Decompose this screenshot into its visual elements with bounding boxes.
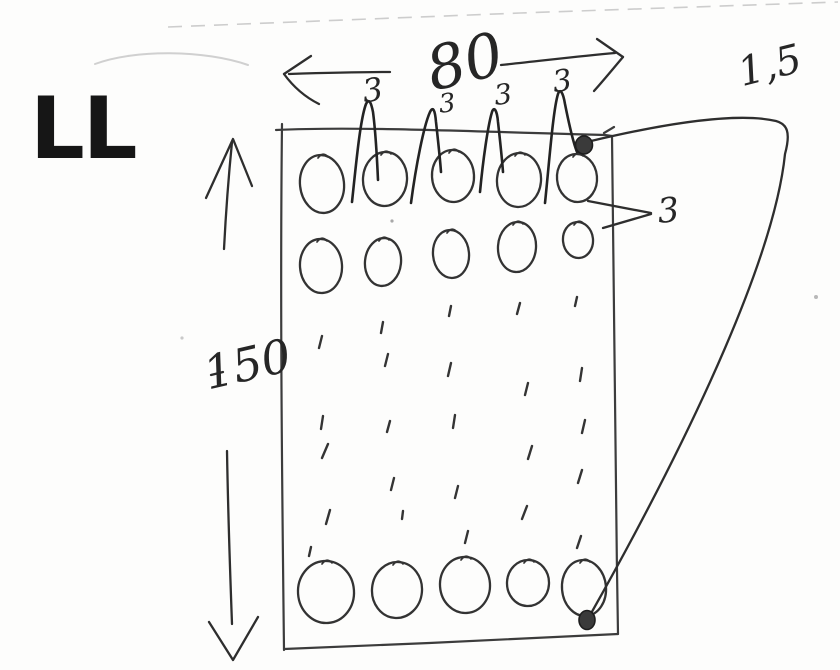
hole-circle bbox=[496, 221, 537, 274]
pencil-arc bbox=[95, 53, 248, 65]
continuation-dash bbox=[321, 416, 323, 429]
hole-circle bbox=[431, 229, 471, 280]
continuation-dash bbox=[453, 415, 455, 428]
anchor-dots bbox=[576, 136, 596, 630]
pitch-spike bbox=[545, 91, 577, 203]
continuation-dash bbox=[326, 510, 330, 524]
hole-circle bbox=[431, 149, 476, 203]
paper-speck bbox=[390, 219, 393, 222]
paper-speck bbox=[814, 295, 818, 299]
continuation-dash bbox=[582, 420, 585, 433]
continuation-dash bbox=[522, 506, 527, 519]
continuation-dash bbox=[387, 421, 390, 432]
hole-circle bbox=[555, 152, 599, 203]
continuation-dash bbox=[381, 322, 383, 333]
continuation-dash bbox=[525, 383, 528, 395]
hole-circle bbox=[361, 151, 409, 208]
plate-top-edge bbox=[276, 129, 612, 136]
continuation-marks bbox=[309, 297, 585, 556]
hole-circle bbox=[561, 221, 595, 260]
pitch-label: 3 bbox=[437, 88, 457, 120]
pitch-label: 3 bbox=[550, 63, 574, 100]
dim-arrow-left-head-icon bbox=[284, 56, 311, 74]
hole-circle bbox=[506, 559, 550, 607]
continuation-dash bbox=[309, 547, 311, 556]
dim-arrow-right-barb-icon bbox=[594, 57, 623, 91]
hole-circle bbox=[363, 236, 404, 288]
sketch-page: LL 80 150 bbox=[0, 0, 840, 670]
continuation-dash bbox=[455, 486, 458, 498]
plate-corner-tick bbox=[604, 127, 614, 133]
anchor-dot bbox=[579, 611, 595, 630]
pitch-spike bbox=[480, 109, 503, 192]
dim-arrow-left-barb-icon bbox=[284, 74, 319, 104]
plate-left-edge bbox=[281, 124, 284, 650]
pitch-spike bbox=[411, 109, 441, 203]
hole-circle bbox=[370, 560, 425, 620]
continuation-dash bbox=[449, 306, 451, 316]
thickness-label: 1,5 bbox=[733, 36, 806, 96]
continuation-dash bbox=[319, 336, 322, 348]
continuation-dash bbox=[528, 446, 532, 459]
pitch-label: 3 bbox=[492, 77, 514, 112]
faint-dashed-scanline bbox=[168, 2, 838, 27]
dim-arrow-down-shaft bbox=[227, 451, 232, 624]
continuation-dash bbox=[580, 368, 582, 381]
continuation-dash bbox=[448, 363, 451, 376]
continuation-dash bbox=[517, 303, 520, 314]
dim-arrow-right-shaft bbox=[501, 53, 615, 65]
anchor-dot bbox=[576, 136, 593, 154]
hole-circle bbox=[296, 559, 356, 625]
continuation-dash bbox=[465, 531, 468, 543]
callout-line bbox=[588, 201, 651, 213]
continuation-dash bbox=[402, 511, 403, 519]
continuation-dash bbox=[322, 444, 328, 458]
plate-bottom-edge bbox=[284, 634, 618, 649]
hole-circle bbox=[297, 153, 347, 215]
page-title: LL bbox=[30, 79, 136, 179]
plate-right-edge bbox=[612, 136, 618, 634]
hole-circle bbox=[298, 238, 344, 295]
thickness-callout: 1,5 bbox=[589, 36, 806, 617]
dim-arrow-down-head-icon bbox=[209, 617, 258, 660]
continuation-dash bbox=[578, 470, 582, 483]
hole-circle bbox=[438, 555, 492, 614]
hole-diameter-label: 3 bbox=[655, 190, 681, 232]
continuation-dash bbox=[385, 354, 388, 366]
callout-line bbox=[603, 214, 651, 228]
pitch-label: 3 bbox=[360, 70, 385, 110]
continuation-dash bbox=[391, 478, 394, 490]
pitch-spike bbox=[352, 101, 378, 202]
diameter-callout: 3 bbox=[588, 190, 681, 232]
hole-circle bbox=[560, 558, 609, 618]
continuation-dash bbox=[577, 536, 581, 548]
hole-grid bbox=[296, 149, 608, 625]
thickness-curve bbox=[589, 118, 788, 617]
hand-drawn-plate-sketch: LL 80 150 bbox=[0, 0, 840, 670]
continuation-dash bbox=[575, 297, 577, 306]
paper-speck bbox=[180, 336, 183, 339]
